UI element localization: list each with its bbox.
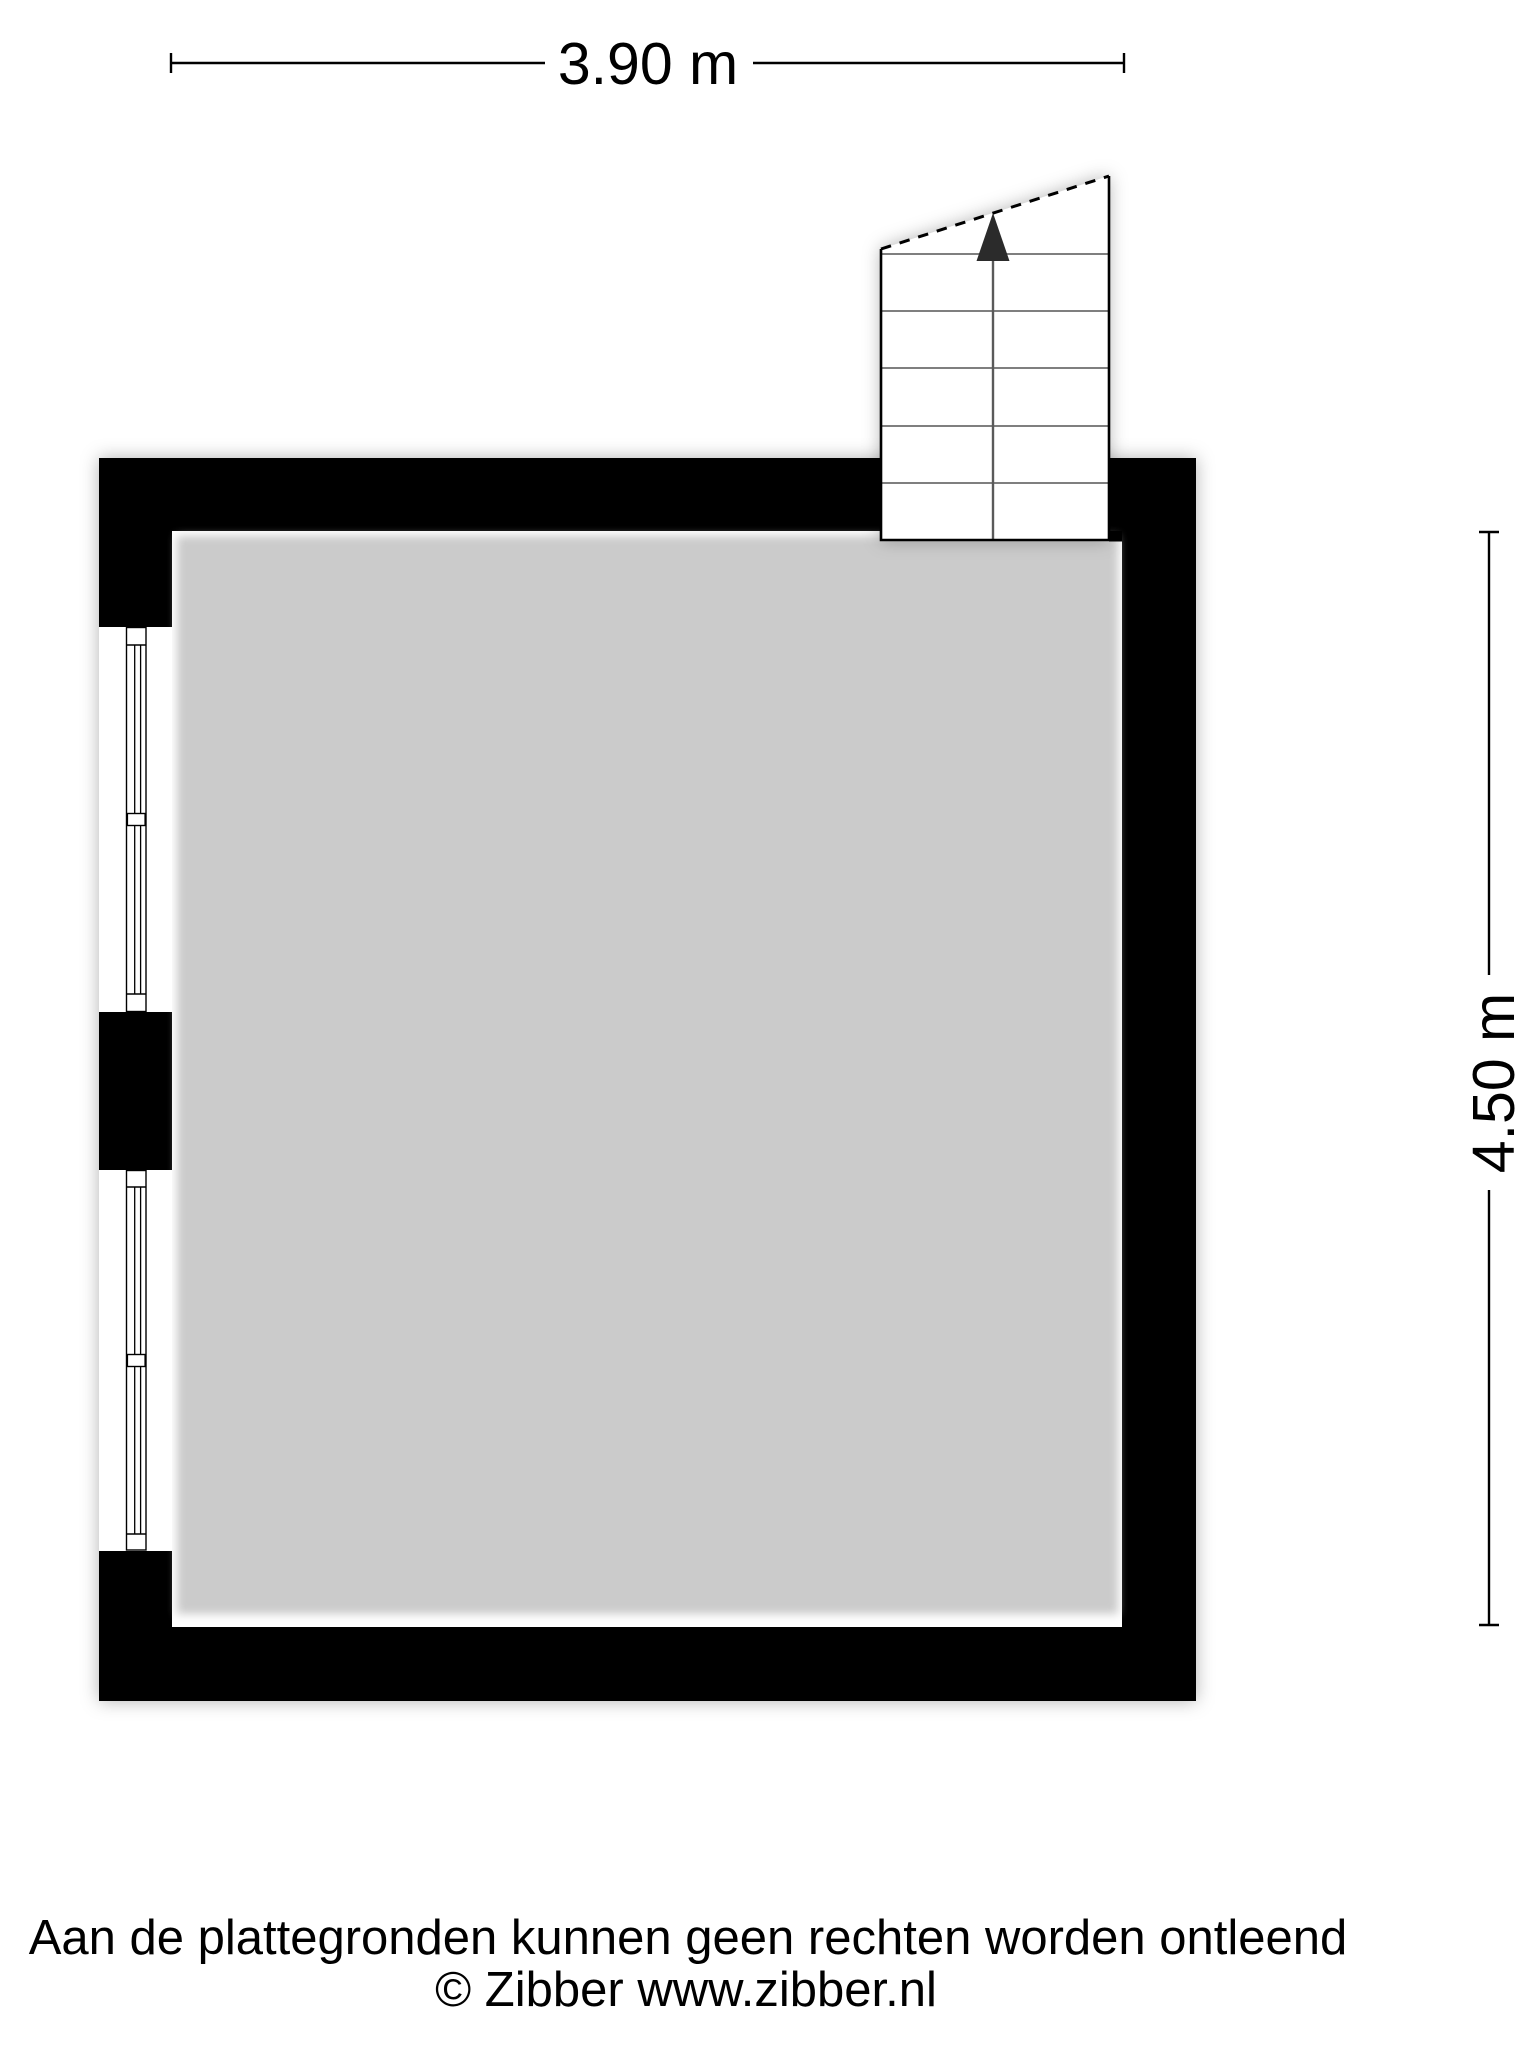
svg-text:4.50 m: 4.50 m — [1461, 993, 1527, 1173]
svg-text:3.90 m: 3.90 m — [558, 31, 738, 97]
svg-text:Aan de plattegronden kunnen ge: Aan de plattegronden kunnen geen rechten… — [29, 1911, 1348, 1965]
svg-text:© Zibber www.zibber.nl: © Zibber www.zibber.nl — [435, 1963, 937, 2017]
